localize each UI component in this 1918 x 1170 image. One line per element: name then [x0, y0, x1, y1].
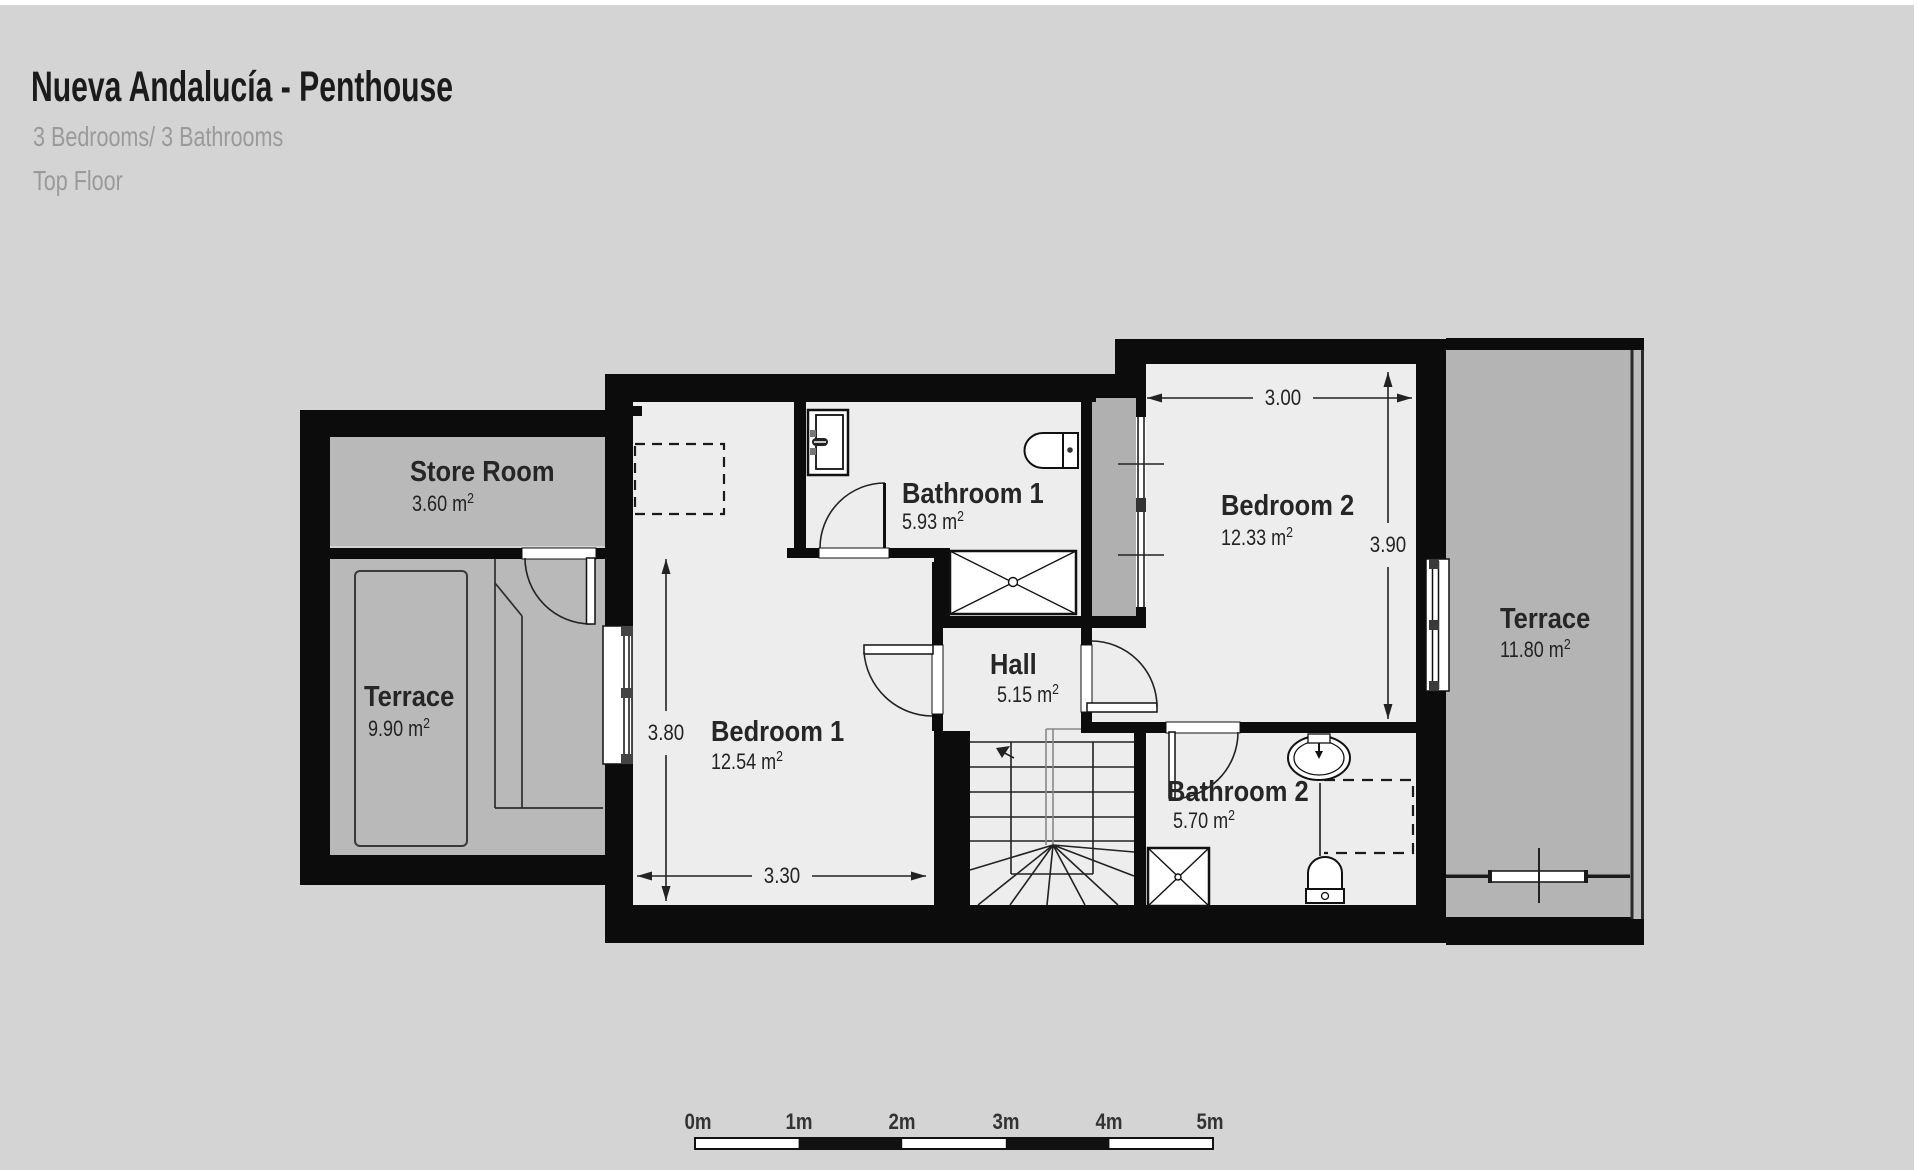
svg-text:2m: 2m — [888, 1111, 915, 1135]
svg-text:5m: 5m — [1196, 1111, 1223, 1135]
svg-text:Nueva Andalucía - Penthouse: Nueva Andalucía - Penthouse — [31, 62, 453, 111]
svg-text:Store Room: Store Room — [410, 454, 555, 487]
svg-text:5.15 m2: 5.15 m2 — [997, 681, 1059, 708]
svg-text:11.80 m2: 11.80 m2 — [1500, 636, 1571, 663]
svg-text:3.00: 3.00 — [1265, 387, 1301, 411]
svg-text:Bedroom 2: Bedroom 2 — [1221, 488, 1354, 521]
svg-text:9.90 m2: 9.90 m2 — [368, 715, 430, 742]
svg-text:1m: 1m — [785, 1111, 812, 1135]
svg-text:Bedroom 1: Bedroom 1 — [711, 714, 844, 747]
svg-text:3.90: 3.90 — [1370, 534, 1406, 558]
svg-text:12.33 m2: 12.33 m2 — [1221, 524, 1293, 551]
svg-text:5.93 m2: 5.93 m2 — [902, 508, 964, 535]
svg-text:Bathroom 2: Bathroom 2 — [1167, 774, 1309, 807]
svg-text:Terrace: Terrace — [364, 679, 454, 712]
svg-text:0m: 0m — [684, 1111, 711, 1135]
svg-text:3 Bedrooms/ 3 Bathrooms: 3 Bedrooms/ 3 Bathrooms — [33, 121, 283, 152]
svg-text:12.54 m2: 12.54 m2 — [711, 748, 783, 775]
svg-text:3.60 m2: 3.60 m2 — [412, 490, 474, 517]
svg-text:Terrace: Terrace — [1500, 601, 1590, 634]
svg-text:3.80: 3.80 — [648, 722, 684, 746]
svg-text:Hall: Hall — [990, 647, 1037, 680]
svg-text:3.30: 3.30 — [764, 865, 800, 889]
svg-text:5.70 m2: 5.70 m2 — [1173, 807, 1235, 834]
svg-text:3m: 3m — [992, 1111, 1019, 1135]
svg-text:Top Floor: Top Floor — [33, 165, 123, 196]
svg-text:Bathroom 1: Bathroom 1 — [902, 476, 1044, 509]
svg-text:4m: 4m — [1095, 1111, 1122, 1135]
